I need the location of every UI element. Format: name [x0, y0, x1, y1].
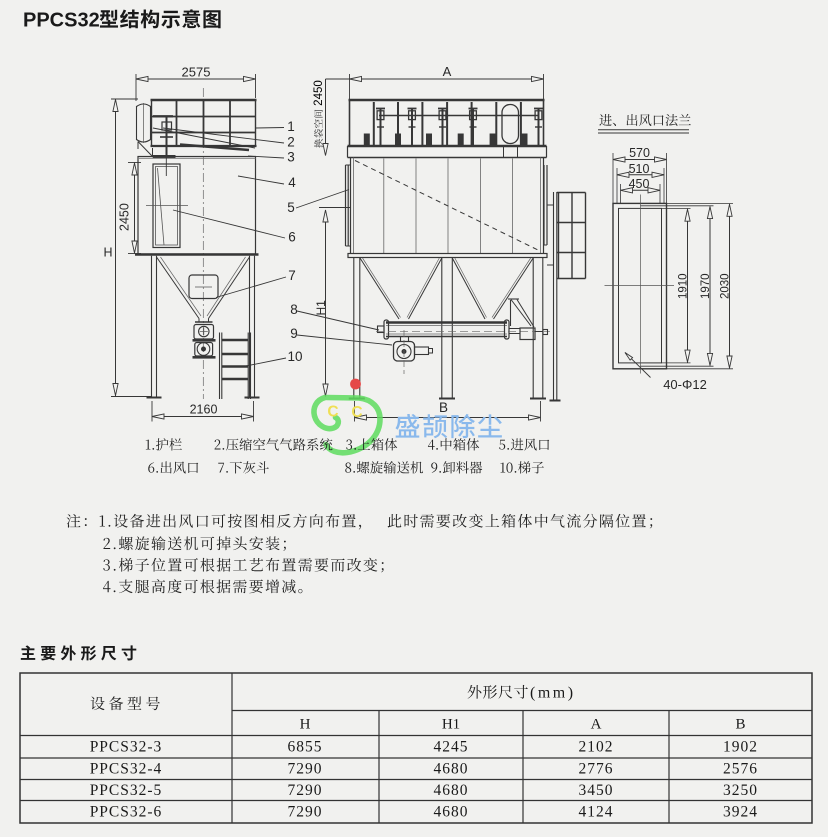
svg-text:3250: 3250: [723, 782, 758, 799]
svg-text:PPCS32: PPCS32: [23, 10, 100, 32]
svg-text:1902: 1902: [723, 739, 758, 756]
svg-text:2575: 2575: [182, 65, 211, 80]
svg-text:2: 2: [287, 135, 295, 150]
svg-text:PPCS32-5: PPCS32-5: [90, 782, 163, 799]
svg-text:4124: 4124: [579, 804, 614, 821]
svg-text:7290: 7290: [288, 782, 323, 799]
svg-text:4680: 4680: [434, 761, 469, 778]
svg-text:H: H: [103, 246, 112, 260]
svg-text:A: A: [443, 64, 452, 79]
svg-text:4680: 4680: [434, 804, 469, 821]
svg-text:6: 6: [288, 230, 296, 245]
svg-text:3: 3: [287, 150, 295, 165]
svg-text:PPCS32-3: PPCS32-3: [90, 739, 163, 756]
svg-text:510: 510: [629, 162, 650, 176]
svg-text:4245: 4245: [434, 739, 469, 756]
svg-text:C: C: [327, 404, 338, 421]
svg-text:5: 5: [287, 200, 295, 215]
svg-text:7290: 7290: [288, 761, 323, 778]
svg-text:1970: 1970: [700, 273, 712, 299]
svg-text:H1: H1: [314, 300, 328, 316]
svg-text:9: 9: [290, 326, 298, 341]
svg-text:2776: 2776: [579, 761, 614, 778]
svg-text:6855: 6855: [288, 739, 323, 756]
svg-text:40-Φ12: 40-Φ12: [663, 377, 707, 392]
svg-text:B: B: [735, 717, 745, 733]
svg-text:1: 1: [287, 119, 295, 134]
svg-text:2450: 2450: [313, 80, 325, 106]
svg-text:B: B: [439, 400, 448, 415]
svg-text:PPCS32-4: PPCS32-4: [90, 761, 163, 778]
svg-text:H: H: [300, 717, 311, 733]
svg-text:10: 10: [287, 349, 302, 364]
svg-text:2102: 2102: [579, 739, 614, 756]
svg-text:PPCS32-6: PPCS32-6: [90, 804, 163, 821]
svg-text:(mm): (mm): [530, 685, 576, 702]
svg-text:1910: 1910: [678, 273, 690, 299]
svg-text:4: 4: [288, 175, 296, 190]
svg-text:2450: 2450: [118, 203, 132, 231]
svg-text:8: 8: [290, 302, 298, 317]
svg-text:A: A: [591, 717, 602, 733]
svg-text:7: 7: [288, 268, 296, 283]
svg-text:7290: 7290: [288, 804, 323, 821]
svg-text:570: 570: [629, 146, 650, 160]
svg-text:4680: 4680: [434, 782, 469, 799]
svg-text:3450: 3450: [579, 782, 614, 799]
svg-text:2576: 2576: [723, 761, 758, 778]
svg-text:3924: 3924: [723, 804, 758, 821]
svg-text:2160: 2160: [190, 403, 218, 417]
svg-text:C: C: [351, 404, 362, 421]
svg-text:H1: H1: [442, 717, 460, 733]
svg-text:2030: 2030: [720, 273, 732, 299]
